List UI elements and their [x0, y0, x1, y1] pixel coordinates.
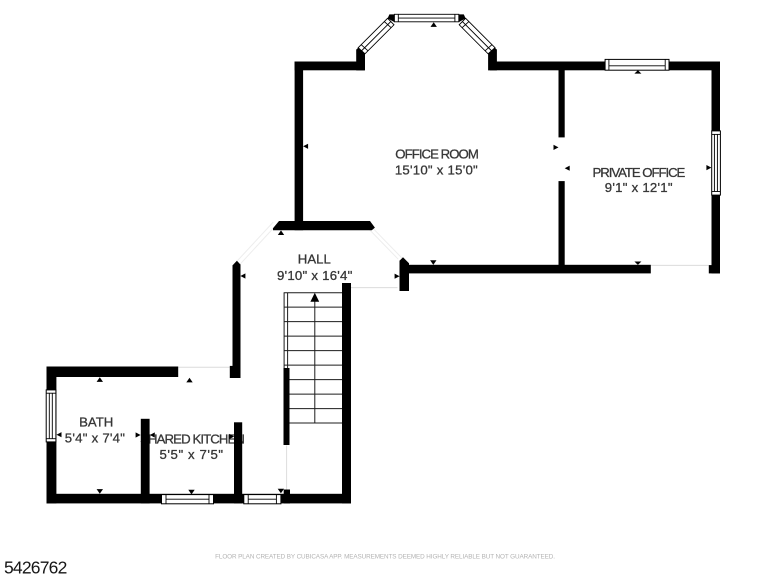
- svg-text:SHARED KITCHEN: SHARED KITCHEN: [140, 432, 244, 447]
- svg-text:OFFICE ROOM: OFFICE ROOM: [395, 146, 478, 161]
- svg-text:BATH: BATH: [79, 415, 113, 430]
- svg-text:PRIVATE OFFICE: PRIVATE OFFICE: [593, 165, 686, 180]
- svg-text:9'1" x 12'1": 9'1" x 12'1": [605, 180, 673, 195]
- svg-text:5426762: 5426762: [4, 558, 67, 576]
- svg-text:HALL: HALL: [298, 252, 331, 267]
- svg-text:9'10" x 16'4": 9'10" x 16'4": [277, 268, 353, 283]
- svg-text:FLOOR PLAN CREATED BY CUBICASA: FLOOR PLAN CREATED BY CUBICASA APP. MEAS…: [215, 553, 555, 560]
- svg-text:5'5" x 7'5": 5'5" x 7'5": [159, 447, 223, 462]
- svg-text:5'4" x 7'4": 5'4" x 7'4": [65, 430, 125, 445]
- svg-text:15'10" x 15'0": 15'10" x 15'0": [395, 163, 478, 178]
